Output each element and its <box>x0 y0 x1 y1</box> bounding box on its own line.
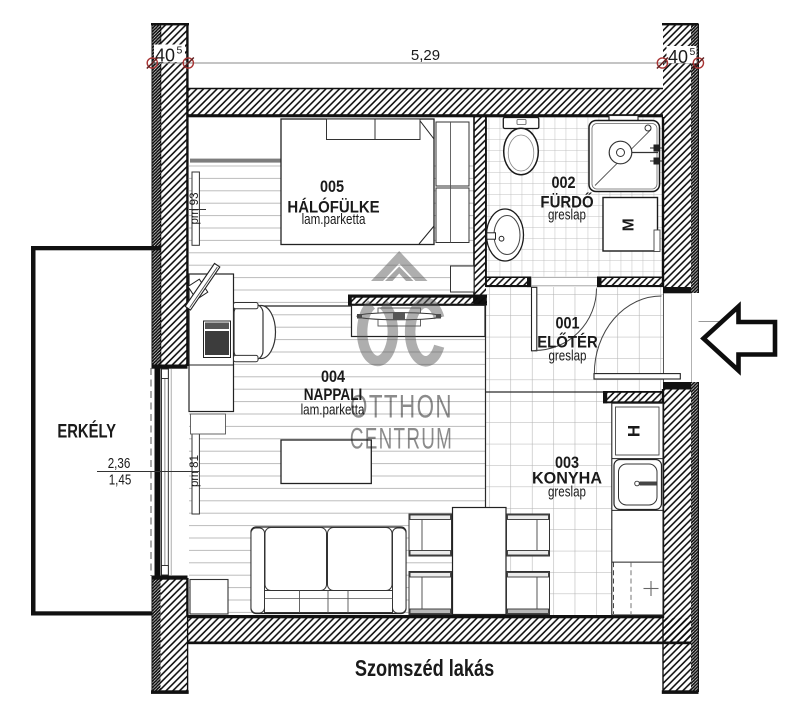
svg-text:H: H <box>624 425 643 437</box>
svg-text:001: 001 <box>555 314 579 332</box>
svg-text:M: M <box>621 218 638 231</box>
svg-text:pm 93: pm 93 <box>189 193 201 225</box>
svg-text:greslap: greslap <box>548 347 586 364</box>
svg-text:5: 5 <box>177 45 183 57</box>
svg-text:005: 005 <box>320 178 344 196</box>
svg-text:CENTRUM: CENTRUM <box>350 423 453 455</box>
svg-text:greslap: greslap <box>548 206 586 223</box>
svg-text:5,29: 5,29 <box>411 47 440 64</box>
svg-text:002: 002 <box>551 174 575 192</box>
svg-text:2,36: 2,36 <box>108 455 131 472</box>
svg-text:5: 5 <box>690 46 696 58</box>
svg-text:ERKÉLY: ERKÉLY <box>57 421 116 442</box>
svg-text:OTTHON: OTTHON <box>350 389 453 425</box>
svg-text:lam.parketta: lam.parketta <box>302 211 366 228</box>
svg-text:1,45: 1,45 <box>109 471 132 488</box>
svg-text:Szomszéd lakás: Szomszéd lakás <box>355 656 494 682</box>
svg-text:004: 004 <box>321 368 345 386</box>
svg-text:greslap: greslap <box>548 483 586 500</box>
svg-text:40: 40 <box>668 47 688 67</box>
